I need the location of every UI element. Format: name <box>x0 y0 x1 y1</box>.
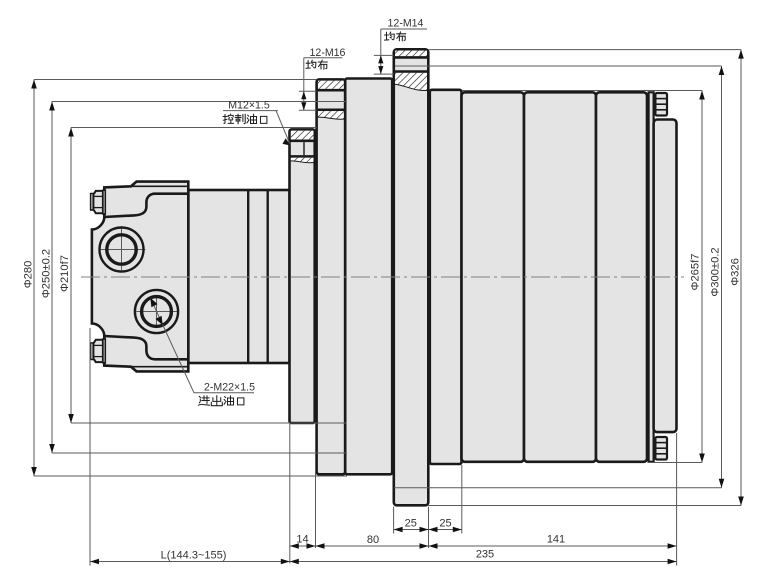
svg-text:Φ210f7: Φ210f7 <box>59 255 71 292</box>
svg-text:Φ326: Φ326 <box>730 258 742 286</box>
svg-text:Φ300±0.2: Φ300±0.2 <box>710 247 722 296</box>
svg-text:14: 14 <box>296 534 308 546</box>
svg-text:L(144.3~155): L(144.3~155) <box>161 549 227 561</box>
svg-text:80: 80 <box>367 534 379 546</box>
svg-text:Φ280: Φ280 <box>23 261 35 289</box>
svg-text:141: 141 <box>547 534 565 546</box>
svg-text:Φ265f7: Φ265f7 <box>690 254 702 291</box>
svg-text:2-M22×1.5: 2-M22×1.5 <box>204 381 255 393</box>
svg-text:25: 25 <box>439 518 451 530</box>
svg-text:Φ250±0.2: Φ250±0.2 <box>41 249 53 298</box>
svg-text:12-M14: 12-M14 <box>388 17 424 29</box>
svg-text:M12×1.5: M12×1.5 <box>228 100 270 112</box>
svg-text:235: 235 <box>476 549 494 561</box>
svg-text:25: 25 <box>405 518 417 530</box>
